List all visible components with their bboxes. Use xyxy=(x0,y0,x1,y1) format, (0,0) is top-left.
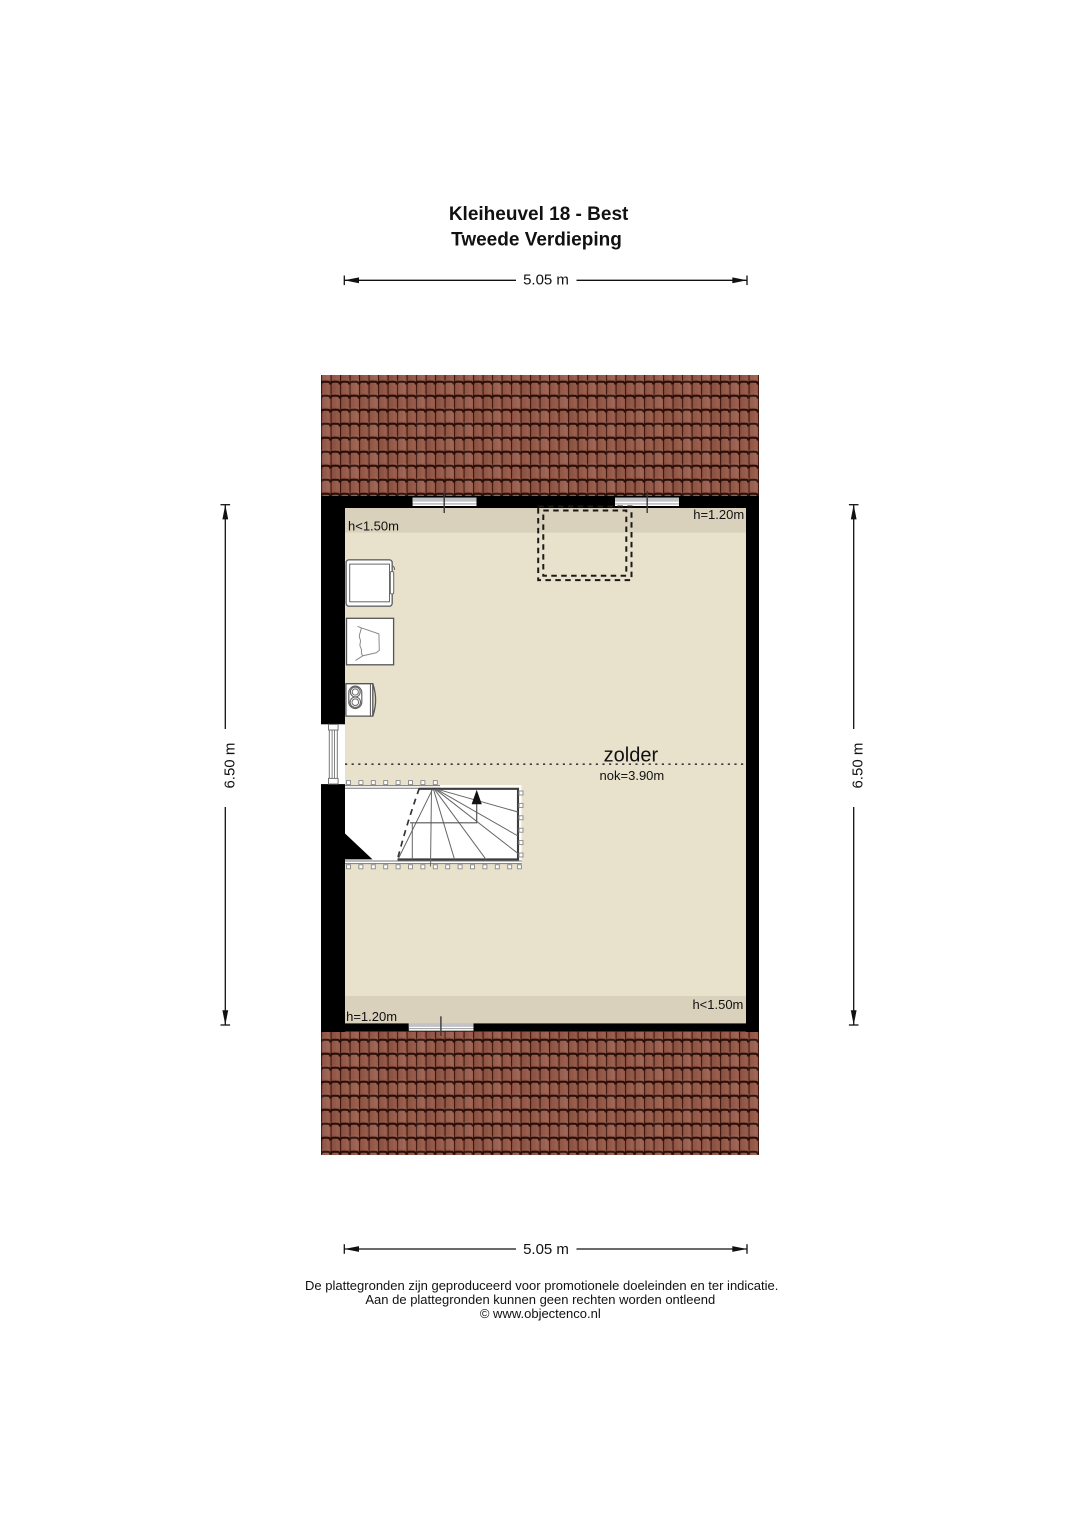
svg-text:h<1.50m: h<1.50m xyxy=(692,997,743,1012)
svg-text:h<1.50m: h<1.50m xyxy=(348,519,399,534)
svg-text:Tweede Verdieping: Tweede Verdieping xyxy=(451,229,622,250)
svg-text:Aan de plattegronden kunnen ge: Aan de plattegronden kunnen geen rechten… xyxy=(365,1292,715,1307)
svg-text:© www.objectenco.nl: © www.objectenco.nl xyxy=(480,1306,601,1321)
svg-text:h=1.20m: h=1.20m xyxy=(346,1009,397,1024)
svg-text:6.50 m: 6.50 m xyxy=(221,743,238,789)
svg-text:De plattegronden zijn geproduc: De plattegronden zijn geproduceerd voor … xyxy=(305,1278,778,1293)
svg-text:6.50 m: 6.50 m xyxy=(850,743,867,789)
svg-text:nok=3.90m: nok=3.90m xyxy=(600,768,665,783)
svg-text:5.05 m: 5.05 m xyxy=(523,1241,569,1258)
svg-text:Kleiheuvel 18 - Best: Kleiheuvel 18 - Best xyxy=(449,204,629,225)
svg-text:5.05 m: 5.05 m xyxy=(523,272,569,289)
svg-text:h=1.20m: h=1.20m xyxy=(693,507,744,522)
